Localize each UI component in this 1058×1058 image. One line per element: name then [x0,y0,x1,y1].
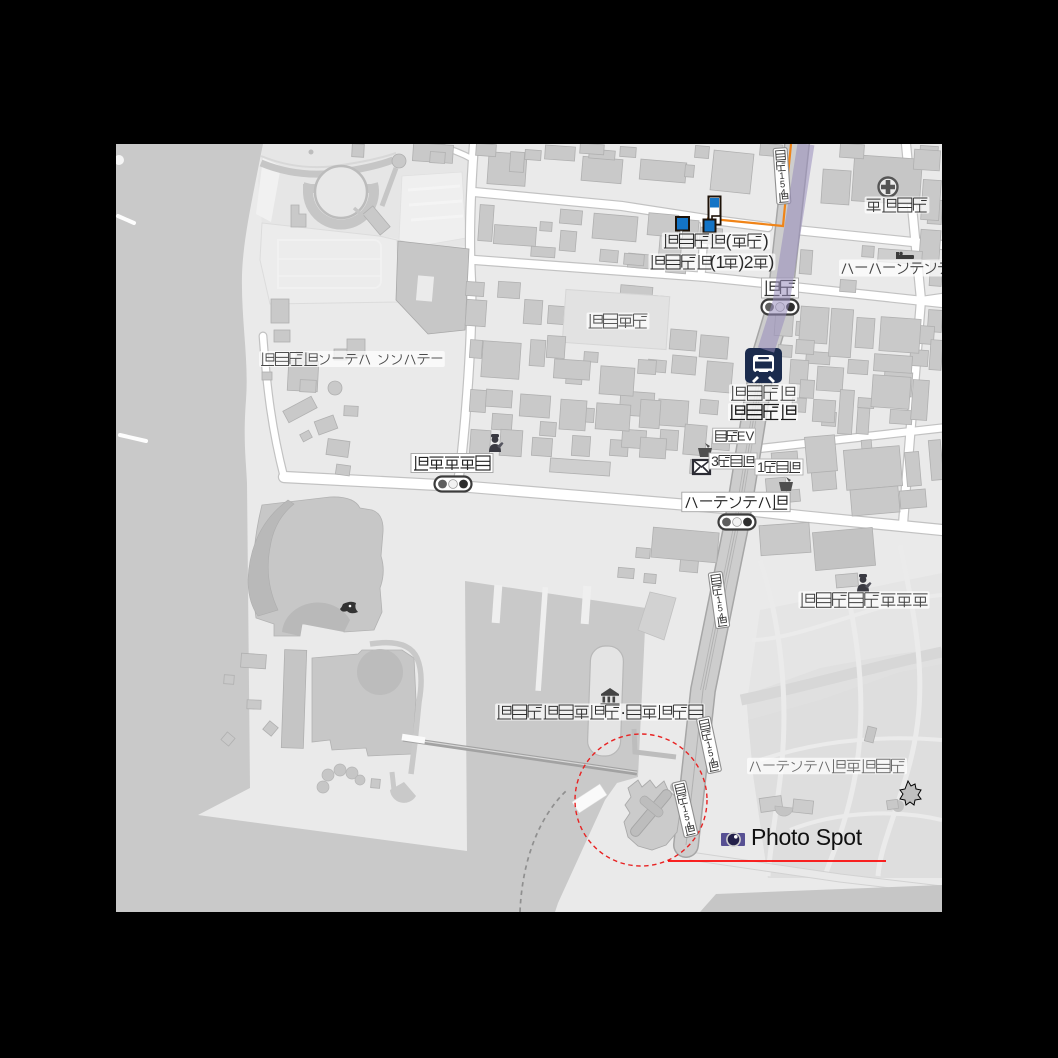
svg-text:(1: (1 [710,252,726,272]
svg-text:2: 2 [744,252,754,272]
svg-text:1: 1 [757,460,765,475]
svg-text:·: · [620,702,626,722]
svg-text:): ) [763,231,769,251]
svg-text:(: ( [726,231,732,251]
svg-text:4: 4 [780,188,786,199]
svg-text:Photo Spot: Photo Spot [751,824,863,850]
svg-text:3: 3 [711,454,719,469]
svg-text:): ) [768,252,774,272]
svg-text:EV: EV [737,429,755,444]
